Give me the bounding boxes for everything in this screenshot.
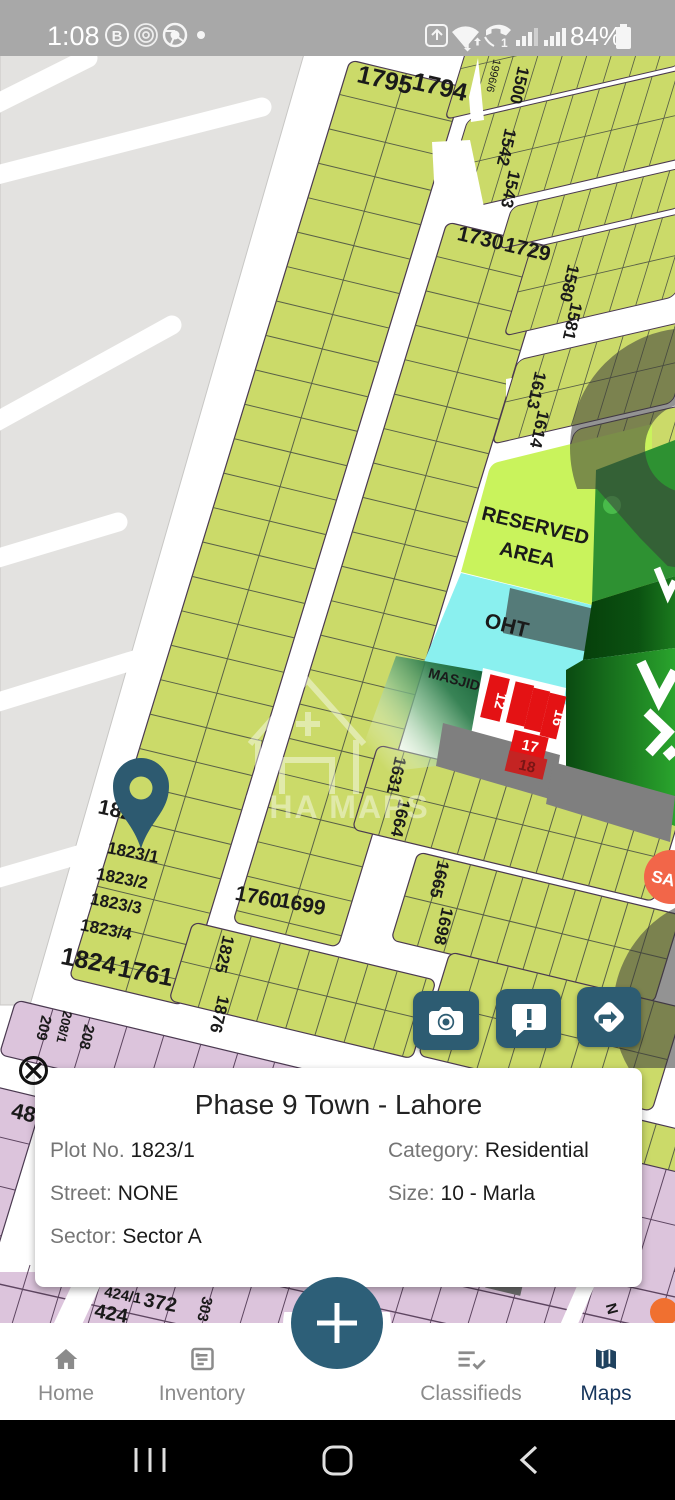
svg-text:84%: 84% <box>570 21 622 51</box>
svg-text:B: B <box>112 28 123 45</box>
svg-text:1:08: 1:08 <box>47 21 100 51</box>
svg-text:1: 1 <box>501 36 508 50</box>
svg-text:DHA MAPS: DHA MAPS <box>244 789 429 825</box>
